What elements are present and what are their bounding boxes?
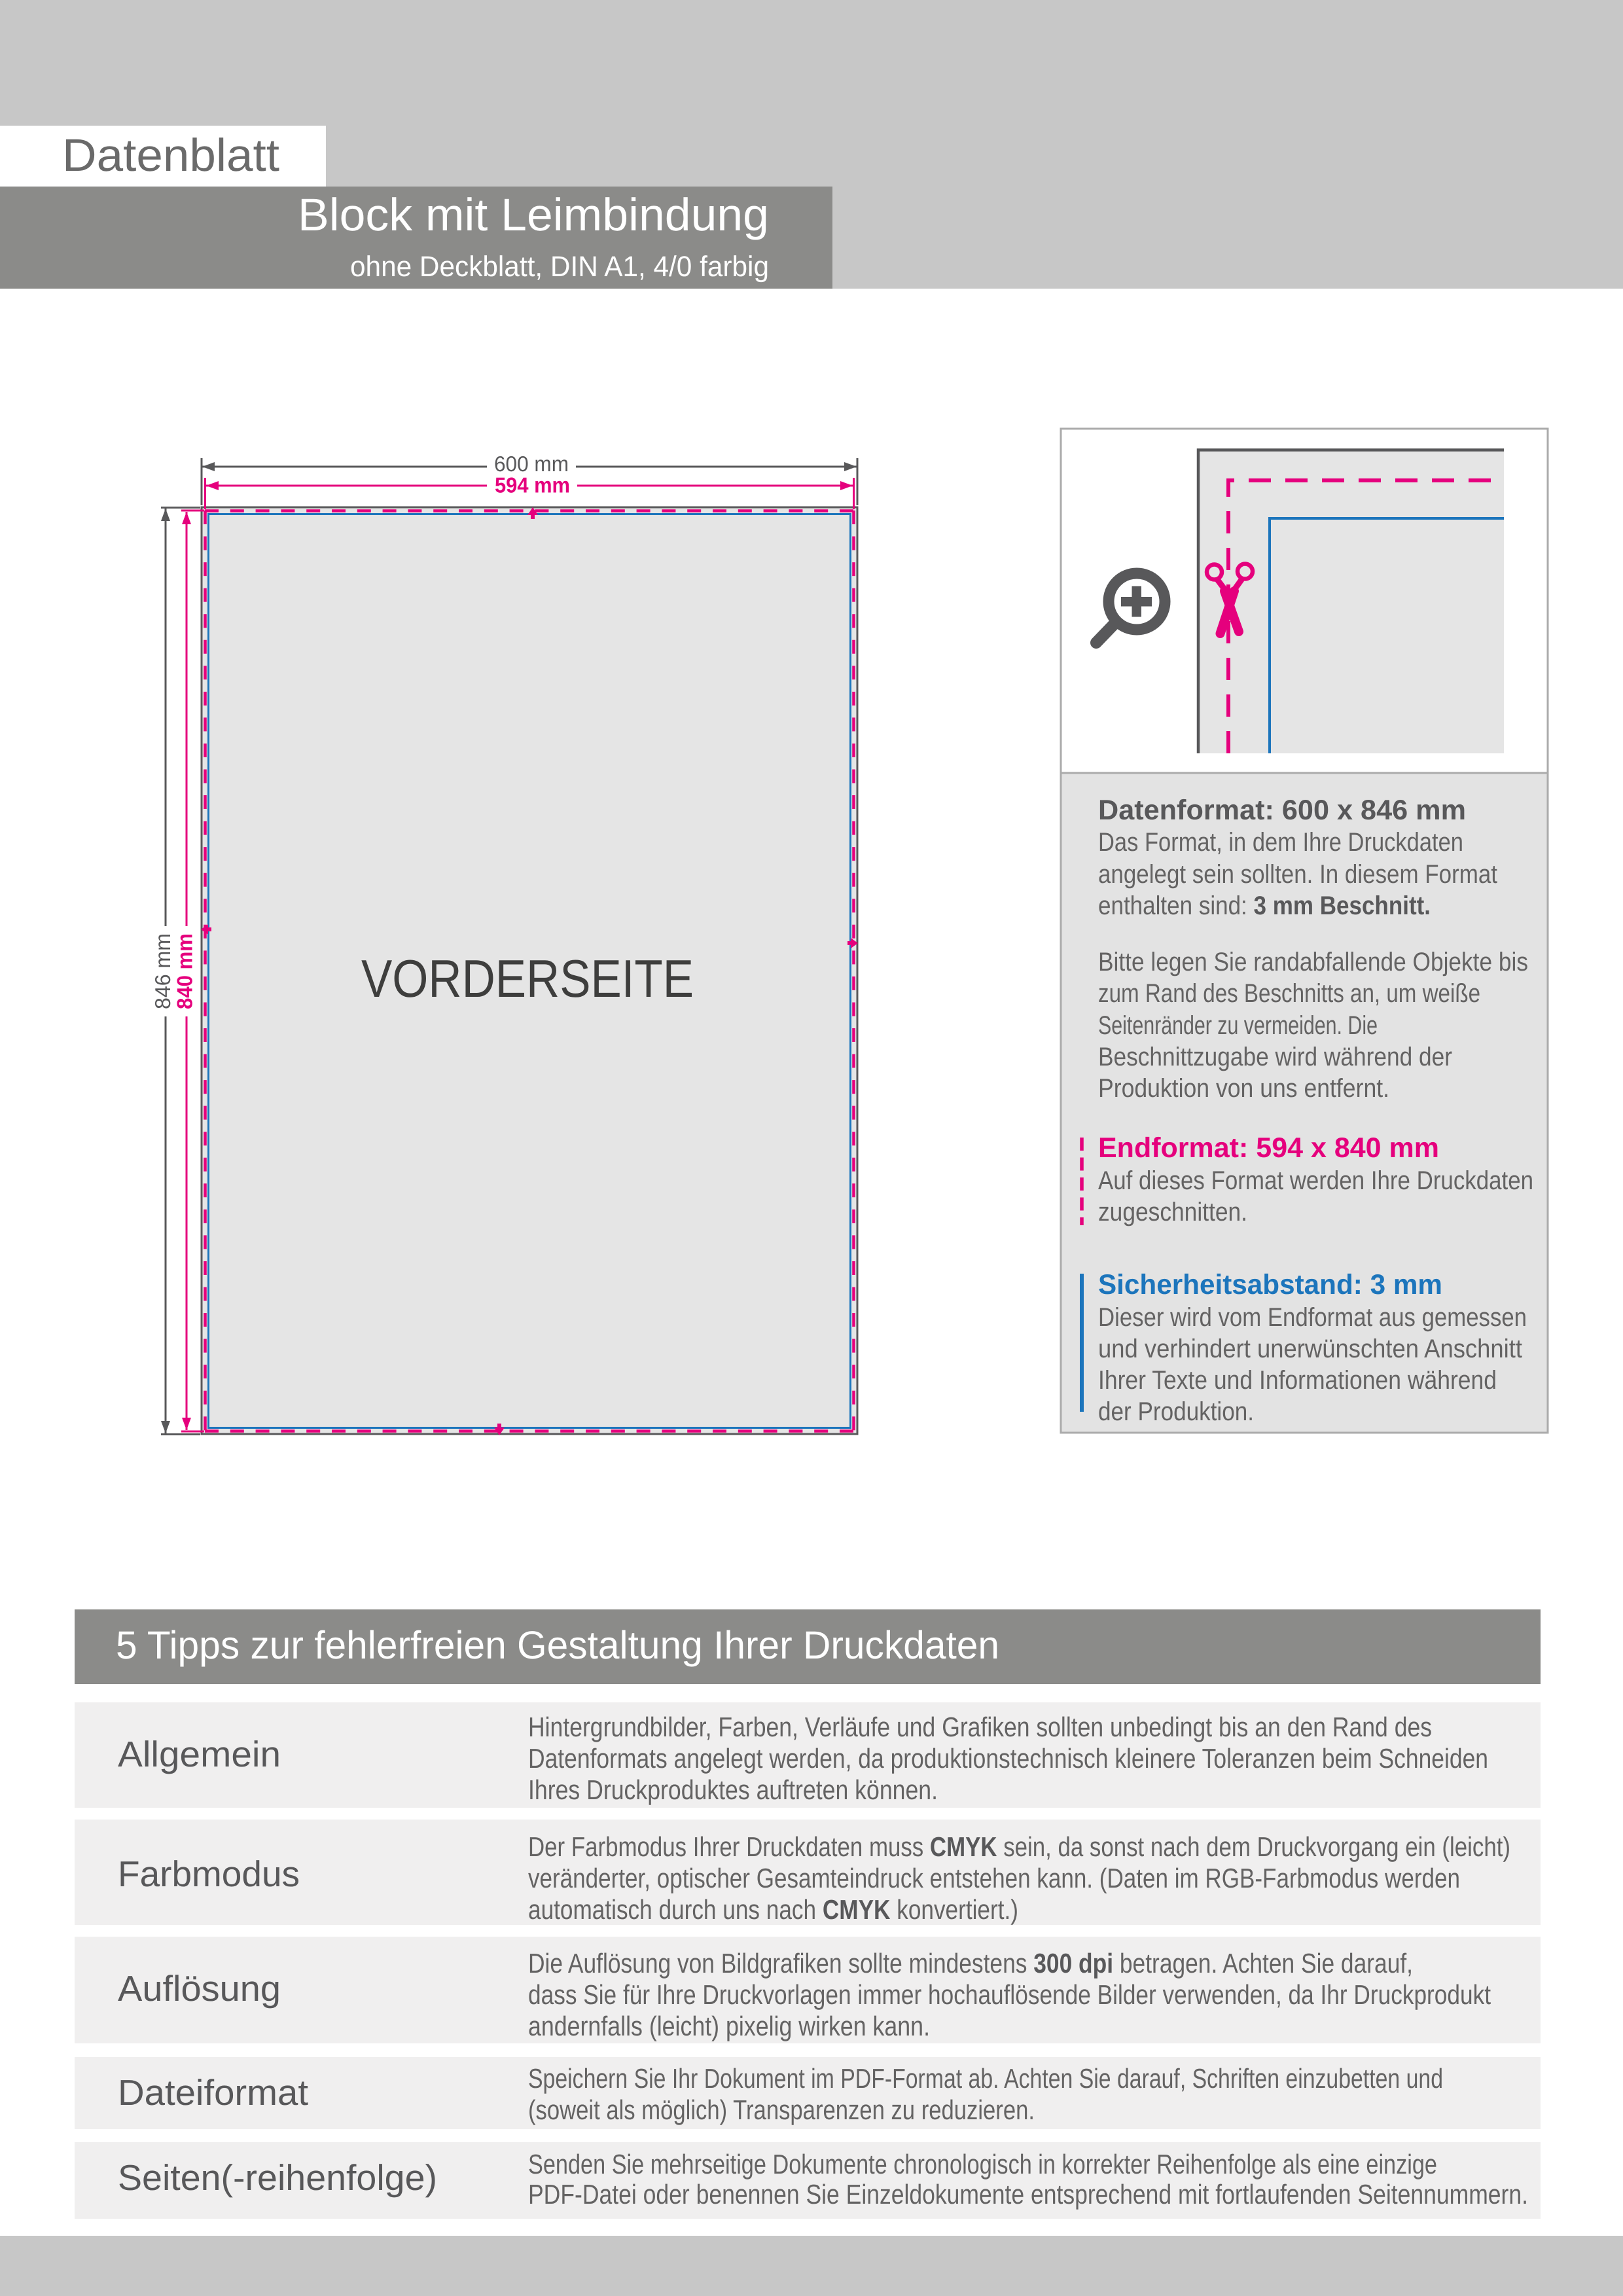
svg-text:Ihrer Texte und Informationen: Ihrer Texte und Informationen während: [1098, 1366, 1497, 1395]
svg-text:Speichern Sie Ihr Dokument im: Speichern Sie Ihr Dokument im PDF-Format…: [528, 2063, 1443, 2094]
svg-text:Dieser wird vom Endformat aus: Dieser wird vom Endformat aus gemessen: [1098, 1303, 1527, 1332]
svg-text:Senden Sie mehrseitige Dokumen: Senden Sie mehrseitige Dokumente chronol…: [528, 2149, 1437, 2179]
svg-text:5 Tipps zur fehlerfreien Gesta: 5 Tipps zur fehlerfreien Gestaltung Ihre…: [116, 1623, 999, 1667]
svg-text:und verhindert unerwünschten A: und verhindert unerwünschten Anschnitt: [1098, 1335, 1522, 1363]
svg-text:Seiten(-reihenfolge): Seiten(-reihenfolge): [118, 2157, 437, 2198]
svg-text:Sicherheitsabstand: 3 mm: Sicherheitsabstand: 3 mm: [1098, 1269, 1442, 1300]
svg-text:Hintergrundbilder, Farben, Ver: Hintergrundbilder, Farben, Verläufe und …: [528, 1712, 1432, 1742]
svg-text:andernfalls (leicht) pixelig w: andernfalls (leicht) pixelig wirken kann…: [528, 2011, 930, 2041]
svg-text:Dateiformat: Dateiformat: [118, 2072, 308, 2113]
svg-text:ohne Deckblatt, DIN A1, 4/0 fa: ohne Deckblatt, DIN A1, 4/0 farbig: [350, 251, 769, 283]
svg-text:der Produktion.: der Produktion.: [1098, 1397, 1254, 1426]
svg-text:Produktion von uns entfernt.: Produktion von uns entfernt.: [1098, 1074, 1389, 1103]
svg-text:Ihres Druckproduktes auftreten: Ihres Druckproduktes auftreten können.: [528, 1774, 938, 1805]
svg-text:594 mm: 594 mm: [495, 473, 570, 497]
svg-text:840 mm: 840 mm: [173, 933, 197, 1009]
svg-text:veränderter, optischer Gesamte: veränderter, optischer Gesamteindruck en…: [528, 1863, 1460, 1893]
svg-text:Datenformats angelegt werden,: Datenformats angelegt werden, da produkt…: [528, 1743, 1488, 1774]
svg-text:Endformat: 594 x 840 mm: Endformat: 594 x 840 mm: [1098, 1132, 1439, 1164]
svg-text:PDF-Datei oder benennen Sie Ei: PDF-Datei oder benennen Sie Einzeldokume…: [528, 2179, 1528, 2210]
svg-text:Das Format, in dem Ihre Druckd: Das Format, in dem Ihre Druckdaten: [1098, 828, 1463, 857]
svg-text:dass Sie für Ihre Druckvorlage: dass Sie für Ihre Druckvorlagen immer ho…: [528, 1979, 1491, 2010]
svg-text:enthalten sind: 3 mm Beschnitt: enthalten sind: 3 mm Beschnitt.: [1098, 891, 1431, 920]
svg-text:Die Auflösung von Bildgrafiken: Die Auflösung von Bildgrafiken sollte mi…: [528, 1948, 1413, 1979]
svg-text:angelegt sein sollten. In dies: angelegt sein sollten. In diesem Format: [1098, 860, 1497, 889]
svg-text:automatisch durch uns nach CMY: automatisch durch uns nach CMYK konverti…: [528, 1894, 1018, 1925]
svg-text:zugeschnitten.: zugeschnitten.: [1098, 1198, 1247, 1227]
svg-text:Farbmodus: Farbmodus: [118, 1854, 300, 1894]
svg-text:Allgemein: Allgemein: [118, 1734, 281, 1774]
svg-text:Datenblatt: Datenblatt: [62, 130, 279, 181]
svg-text:846 mm: 846 mm: [151, 933, 175, 1009]
svg-text:Seitenränder zu vermeiden. Die: Seitenränder zu vermeiden. Die: [1098, 1011, 1378, 1040]
svg-text:(soweit als möglich) Transpare: (soweit als möglich) Transparenzen zu re…: [528, 2094, 1035, 2125]
svg-text:zum Rand des Beschnitts an, um: zum Rand des Beschnitts an, um weiße: [1098, 979, 1480, 1008]
svg-text:Datenformat: 600 x 846 mm: Datenformat: 600 x 846 mm: [1098, 795, 1466, 826]
svg-text:Beschnittzugabe wird während d: Beschnittzugabe wird während der: [1098, 1043, 1452, 1071]
svg-text:600 mm: 600 mm: [494, 452, 569, 476]
svg-text:Bitte legen Sie randabfallende: Bitte legen Sie randabfallende Objekte b…: [1098, 948, 1528, 977]
svg-text:Block mit Leimbindung: Block mit Leimbindung: [298, 189, 769, 240]
svg-text:Auflösung: Auflösung: [118, 1968, 281, 2009]
svg-text:Auf dieses Format werden Ihre: Auf dieses Format werden Ihre Druckdaten: [1098, 1166, 1533, 1195]
svg-text:Der Farbmodus Ihrer Druckdaten: Der Farbmodus Ihrer Druckdaten muss CMYK…: [528, 1831, 1510, 1862]
svg-text:VORDERSEITE: VORDERSEITE: [361, 950, 694, 1009]
